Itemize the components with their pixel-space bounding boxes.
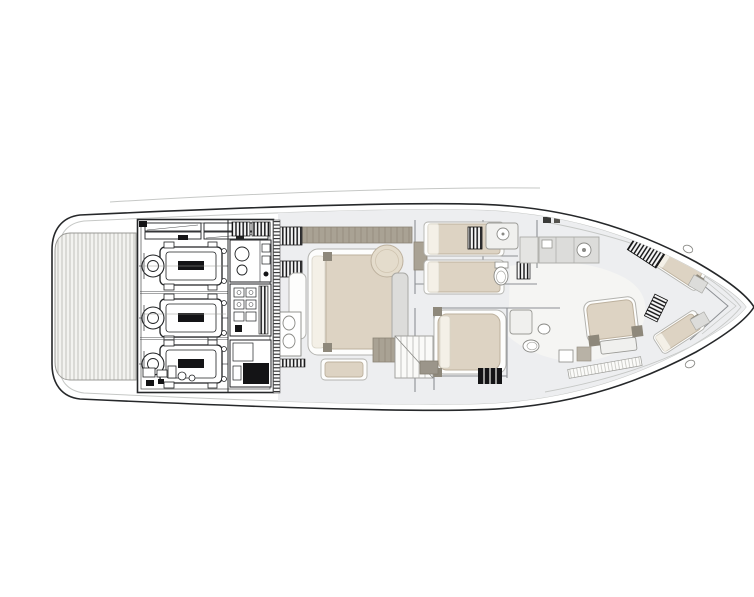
vip-pillows bbox=[440, 316, 450, 368]
toilet bbox=[494, 267, 508, 285]
swim-platform bbox=[55, 233, 136, 380]
engine-room bbox=[138, 220, 274, 394]
cabinet bbox=[520, 237, 538, 263]
vip-sink bbox=[538, 324, 550, 334]
locker-louver-1 bbox=[280, 227, 302, 245]
bulkhead-hatching bbox=[274, 220, 281, 393]
twin-pillow-1 bbox=[428, 224, 439, 254]
deck-plan-figure: Yacht lower deck floor plan Black-and-wh… bbox=[40, 16, 754, 581]
counter-item bbox=[542, 240, 552, 248]
nightstand-2 bbox=[323, 343, 332, 352]
sink-2 bbox=[283, 334, 295, 348]
forward-nightstand-2 bbox=[631, 325, 643, 337]
vip-shower bbox=[510, 310, 532, 334]
corridor-cabinet bbox=[559, 350, 573, 362]
shower-drain-dot bbox=[502, 233, 505, 236]
galley-sink-drain bbox=[582, 248, 586, 252]
vip-cabin bbox=[433, 307, 506, 384]
deck-plan-canvas: Yacht lower deck floor plan Black-and-wh… bbox=[40, 16, 754, 581]
master-pillows bbox=[312, 256, 325, 348]
forward-nightstand-1 bbox=[588, 334, 600, 346]
vent-grille bbox=[279, 359, 305, 367]
stair-landing bbox=[373, 338, 395, 362]
stair-base-block bbox=[420, 361, 438, 374]
corridor-dresser bbox=[577, 347, 591, 361]
bathroom-louver bbox=[517, 262, 530, 279]
switchboard bbox=[259, 286, 268, 334]
foot-bench bbox=[325, 362, 363, 377]
battery-bank-1 bbox=[232, 222, 250, 236]
battery-bank-2 bbox=[252, 222, 270, 236]
vip-nightstand-1 bbox=[433, 307, 442, 316]
louver-door bbox=[468, 227, 482, 249]
hatch-solid bbox=[243, 363, 269, 384]
sink-1 bbox=[283, 316, 295, 330]
twin-pillow-2 bbox=[428, 262, 439, 292]
nightstand-1 bbox=[323, 252, 332, 261]
equipment-rack bbox=[228, 220, 271, 393]
wardrobe bbox=[294, 227, 412, 243]
vip-toilet bbox=[523, 340, 539, 352]
forward-bed bbox=[586, 299, 636, 340]
deck-fitting-1 bbox=[543, 217, 551, 223]
